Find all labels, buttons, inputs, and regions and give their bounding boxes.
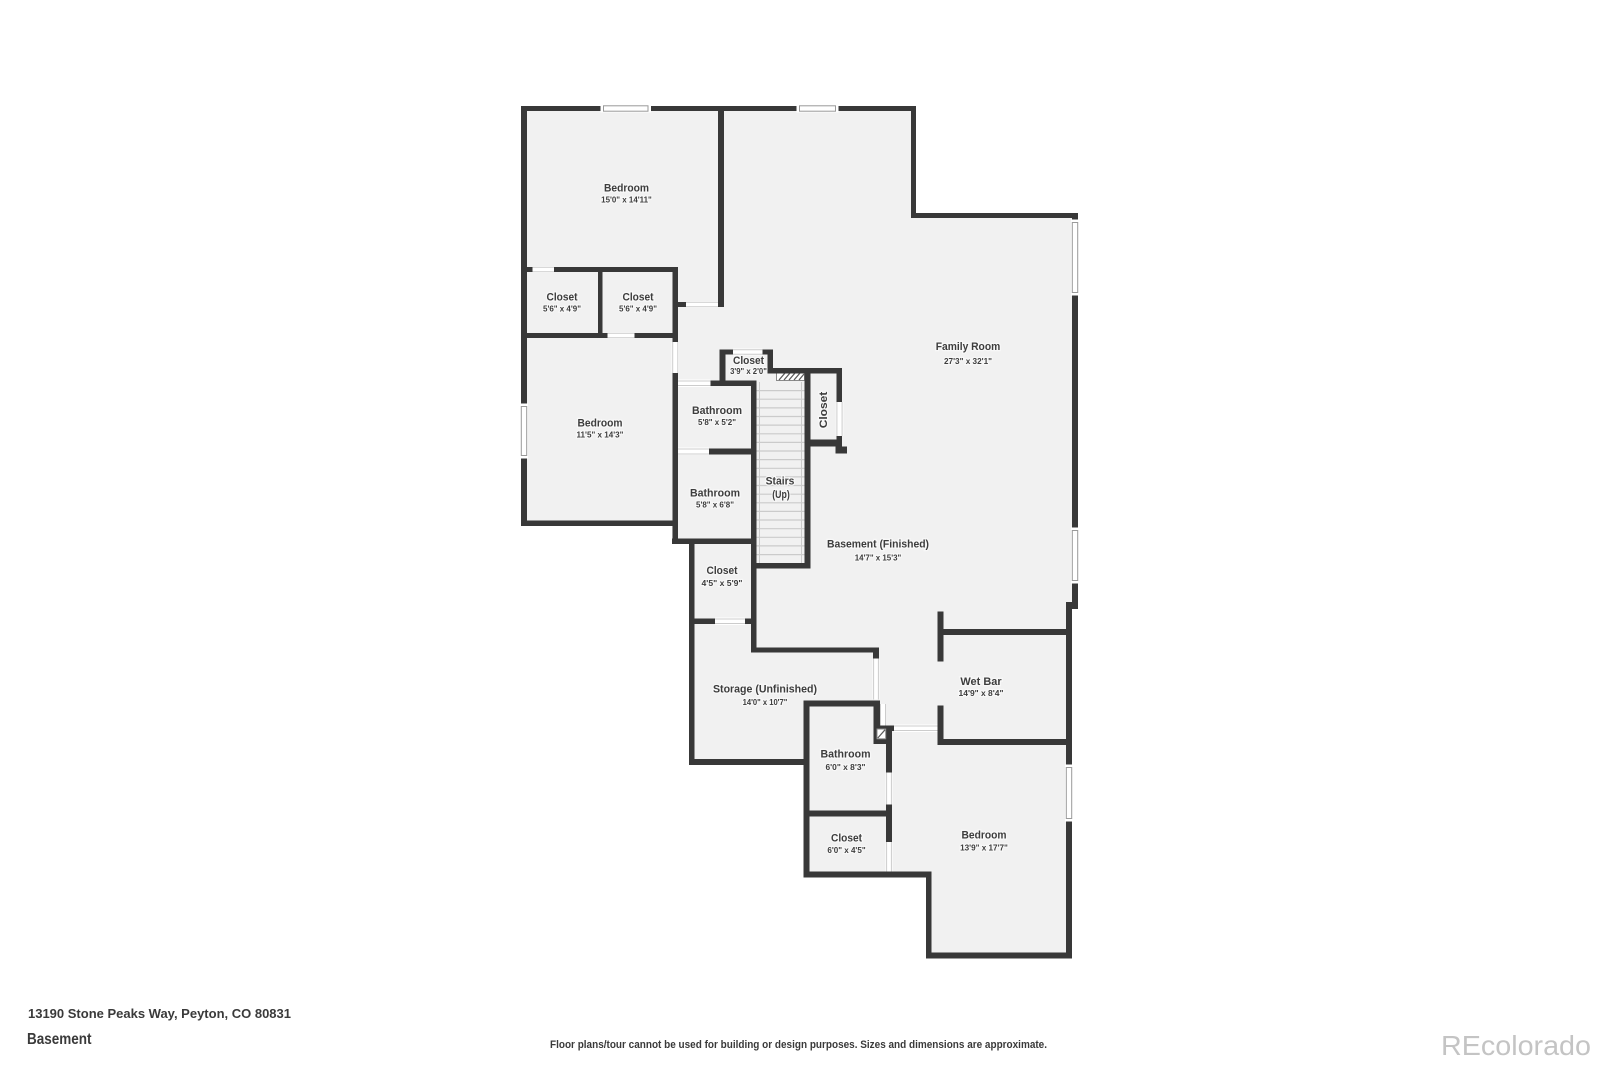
svg-text:REcolorado: REcolorado (1441, 1030, 1591, 1061)
svg-text:(Up): (Up) (772, 489, 790, 501)
svg-text:Closet: Closet (831, 833, 862, 845)
svg-text:13190 Stone Peaks Way, Peyton,: 13190 Stone Peaks Way, Peyton, CO 80831 (28, 1006, 291, 1021)
svg-text:Bedroom: Bedroom (604, 183, 649, 195)
svg-text:5'8" x 6'8": 5'8" x 6'8" (696, 501, 734, 510)
svg-text:Closet: Closet (818, 391, 830, 428)
svg-text:Stairs: Stairs (766, 476, 795, 488)
svg-text:Bathroom: Bathroom (821, 749, 871, 761)
svg-text:14'0" x 10'7": 14'0" x 10'7" (743, 698, 788, 707)
svg-text:Bedroom: Bedroom (962, 830, 1007, 842)
svg-text:5'6" x 4'9": 5'6" x 4'9" (543, 305, 581, 314)
svg-text:5'6" x 4'9": 5'6" x 4'9" (619, 305, 657, 314)
svg-text:14'7" x 15'3": 14'7" x 15'3" (855, 554, 902, 563)
svg-text:Basement: Basement (27, 1031, 92, 1048)
svg-text:Bathroom: Bathroom (690, 488, 740, 500)
svg-text:Storage (Unfinished): Storage (Unfinished) (713, 684, 817, 696)
svg-text:15'0" x 14'11": 15'0" x 14'11" (601, 196, 652, 205)
svg-text:6'0" x 4'5": 6'0" x 4'5" (827, 846, 865, 855)
svg-text:6'0" x 8'3": 6'0" x 8'3" (826, 763, 866, 772)
svg-text:Family Room: Family Room (936, 341, 1001, 353)
svg-text:13'9" x 17'7": 13'9" x 17'7" (960, 844, 1008, 853)
svg-text:4'5" x 5'9": 4'5" x 5'9" (702, 579, 743, 588)
svg-text:Bathroom: Bathroom (692, 405, 742, 417)
svg-text:Closet: Closet (733, 355, 764, 367)
svg-text:5'8" x 5'2": 5'8" x 5'2" (698, 418, 736, 427)
svg-text:3'9" x 2'0": 3'9" x 2'0" (730, 367, 767, 376)
svg-text:27'3" x 32'1": 27'3" x 32'1" (944, 357, 992, 366)
svg-text:Basement (Finished): Basement (Finished) (827, 539, 929, 551)
svg-text:14'9" x 8'4": 14'9" x 8'4" (959, 689, 1004, 698)
svg-text:Closet: Closet (547, 292, 578, 304)
svg-text:Bedroom: Bedroom (578, 418, 623, 430)
svg-text:Closet: Closet (623, 292, 654, 304)
svg-text:Closet: Closet (707, 565, 738, 577)
svg-text:Floor plans/tour cannot be use: Floor plans/tour cannot be used for buil… (550, 1039, 1047, 1051)
svg-text:11'5" x 14'3": 11'5" x 14'3" (577, 431, 624, 440)
svg-text:Wet Bar: Wet Bar (960, 676, 1002, 688)
